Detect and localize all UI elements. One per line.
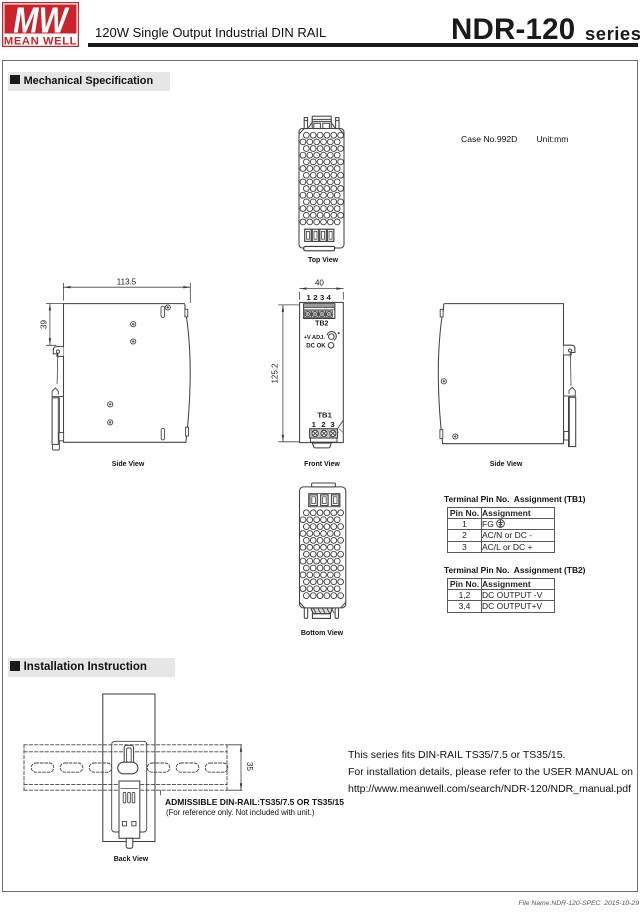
svg-text:1: 1: [307, 293, 312, 302]
svg-text:TB1: TB1: [317, 411, 332, 420]
svg-text:113.5: 113.5: [117, 277, 137, 286]
svg-text:+V ADJ.: +V ADJ.: [304, 335, 326, 341]
svg-text:DC OK: DC OK: [306, 344, 326, 350]
svg-text:3: 3: [320, 293, 324, 302]
svg-text:40: 40: [315, 279, 324, 288]
svg-text:2: 2: [321, 420, 325, 429]
svg-text:39: 39: [40, 320, 49, 329]
svg-text:2: 2: [313, 293, 317, 302]
svg-text:4: 4: [327, 293, 332, 302]
svg-text:35: 35: [245, 762, 254, 771]
svg-text:125.2: 125.2: [270, 363, 279, 384]
svg-text:1: 1: [312, 420, 317, 429]
svg-text:TB2: TB2: [315, 321, 328, 328]
svg-text:3: 3: [330, 420, 334, 429]
